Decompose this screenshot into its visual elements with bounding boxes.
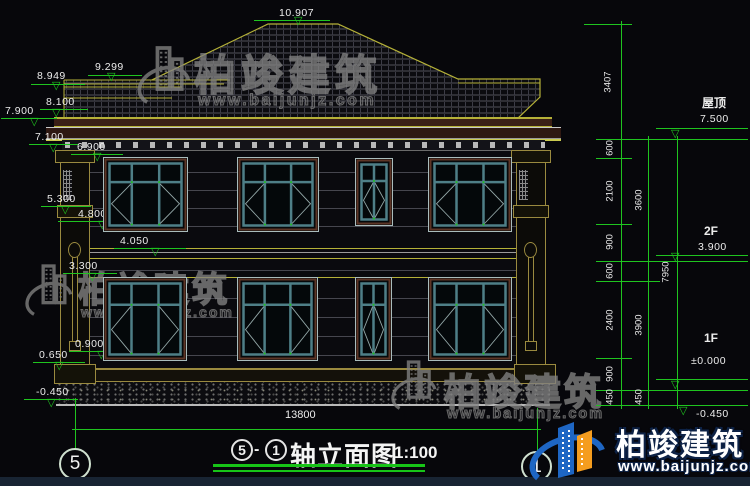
- dimension-label: 600: [605, 140, 616, 156]
- elevation-value: 7.500: [700, 113, 729, 125]
- elevation-triangle-icon: ▽: [61, 205, 69, 214]
- right-downspout-shoe: [525, 341, 537, 351]
- dim-line: [677, 139, 678, 405]
- dim-line: [648, 139, 649, 405]
- elevation-triangle-icon: ▽: [671, 380, 679, 389]
- elevation-marker-line: [114, 248, 186, 249]
- right-pilaster-ornament: [524, 242, 537, 258]
- right-louver-panel: [519, 170, 528, 200]
- dim-line: [596, 281, 660, 282]
- dim-tick: [618, 21, 625, 28]
- elevation-triangle-icon: ▽: [679, 406, 687, 415]
- dimension-label: 450: [634, 389, 645, 405]
- brand-logo-url: www.baijunjz.com: [618, 458, 750, 475]
- dim-line: [621, 24, 622, 405]
- dim-line: [596, 158, 632, 159]
- drawing-title: 轴立面图: [290, 436, 398, 473]
- elevation-triangle-icon: ▽: [107, 72, 115, 81]
- elevation-triangle-icon: ▽: [151, 247, 159, 256]
- dim-tick: [618, 402, 625, 409]
- elevation-triangle-icon: ▽: [55, 361, 63, 370]
- elevation-marker-line: [656, 128, 748, 129]
- dim-tick: [645, 258, 652, 265]
- belt-line: [62, 252, 545, 253]
- dim-line: [596, 358, 632, 359]
- elevation-triangle-icon: ▽: [49, 143, 57, 152]
- elevation-triangle-icon: ▽: [294, 16, 302, 25]
- dim-tick: [645, 387, 652, 394]
- bottom-dim-text: 13800: [285, 409, 316, 421]
- elevation-marker-line: [656, 379, 748, 380]
- cornice-band: [46, 127, 561, 139]
- dim-tick: [618, 136, 625, 143]
- drawing-scale: 1:100: [394, 443, 437, 463]
- dim-tick: [618, 278, 625, 285]
- dim-tick: [618, 155, 625, 162]
- title-underline-2: [213, 470, 425, 472]
- right-pilaster-molding: [513, 205, 549, 218]
- axis-bubble-5: 5: [59, 448, 91, 480]
- dimension-label: 3600: [634, 189, 645, 210]
- elevation-triangle-icon: ▽: [30, 117, 38, 126]
- elevation-marker-line: [254, 20, 330, 21]
- elevation-value: 3.900: [698, 241, 727, 253]
- window: [103, 277, 187, 361]
- window: [237, 277, 318, 361]
- elevation-value: 0.650: [39, 349, 68, 361]
- level-label: 1F: [704, 331, 718, 345]
- foundation-strip: [56, 382, 550, 404]
- elevation-marker-line: [40, 109, 88, 110]
- window: [428, 157, 512, 232]
- dim-tick: [645, 402, 652, 409]
- title-axis-circle-to: 1: [265, 439, 287, 461]
- axis-bubble-5-label: 5: [70, 453, 81, 475]
- eave-fascia: [54, 117, 552, 127]
- window: [355, 158, 393, 226]
- elevation-triangle-icon: ▽: [52, 81, 60, 90]
- dimension-label: 3900: [634, 314, 645, 335]
- dentil-band: [62, 140, 545, 150]
- dimension-label: 7950: [661, 261, 672, 282]
- elevation-triangle-icon: ▽: [671, 252, 679, 261]
- dimension-label: 2400: [605, 309, 616, 330]
- plinth-band: [56, 368, 550, 382]
- dim-tick: [618, 258, 625, 265]
- dim-tick: [72, 426, 79, 433]
- right-pilaster-capital: [511, 150, 551, 163]
- dimension-label: 900: [605, 366, 616, 382]
- dim-tick: [618, 221, 625, 228]
- elevation-triangle-icon: ▽: [88, 272, 96, 281]
- dim-tick: [618, 355, 625, 362]
- window: [237, 157, 319, 232]
- title-underline-1: [213, 464, 425, 467]
- left-pilaster-ornament: [68, 242, 81, 258]
- dimension-label: 3407: [603, 71, 614, 92]
- level-label: 2F: [704, 224, 718, 238]
- axis-line-5: [75, 398, 76, 449]
- dimension-label: 450: [605, 389, 616, 405]
- belt-line: [62, 270, 545, 271]
- belt-line: [62, 258, 545, 259]
- title-axis-circle-from: 5: [231, 439, 253, 461]
- title-axis-to: 1: [272, 442, 280, 458]
- elevation-triangle-icon: ▽: [47, 398, 55, 407]
- title-axis-from: 5: [238, 442, 246, 458]
- elevation-value: 4.050: [120, 235, 149, 247]
- ground-line: [56, 404, 550, 406]
- window: [428, 277, 512, 361]
- window: [355, 277, 392, 361]
- right-pedestal: [514, 364, 556, 384]
- window: [103, 157, 188, 232]
- dimension-label: 600: [605, 263, 616, 279]
- elevation-marker-line: [1, 118, 57, 119]
- elevation-triangle-icon: ▽: [671, 129, 679, 138]
- dimension-label: 900: [605, 234, 616, 250]
- dim-line: [596, 224, 632, 225]
- brand-logo: 柏竣建筑 www.baijunjz.com: [524, 416, 750, 486]
- level-label: 屋顶: [702, 94, 726, 111]
- elevation-marker-line: [660, 405, 748, 406]
- dim-tick: [618, 387, 625, 394]
- right-downspout: [528, 257, 534, 341]
- brand-logo-icon: [524, 416, 616, 486]
- elevation-triangle-icon: ▽: [93, 152, 101, 161]
- title-dash: -: [254, 441, 259, 459]
- elevation-triangle-icon: ▽: [52, 108, 60, 117]
- elevation-marker-line: [656, 255, 748, 256]
- dim-tick: [645, 136, 652, 143]
- dimension-label: 2100: [605, 180, 616, 201]
- elevation-value: ±0.000: [691, 355, 726, 367]
- cad-elevation-drawing: 13800 5 1 5 - 1 轴立面图 1:100 柏竣建筑 www.baij…: [0, 0, 750, 486]
- bottom-dim-line: [75, 429, 537, 430]
- elevation-value: 8.100: [46, 96, 75, 108]
